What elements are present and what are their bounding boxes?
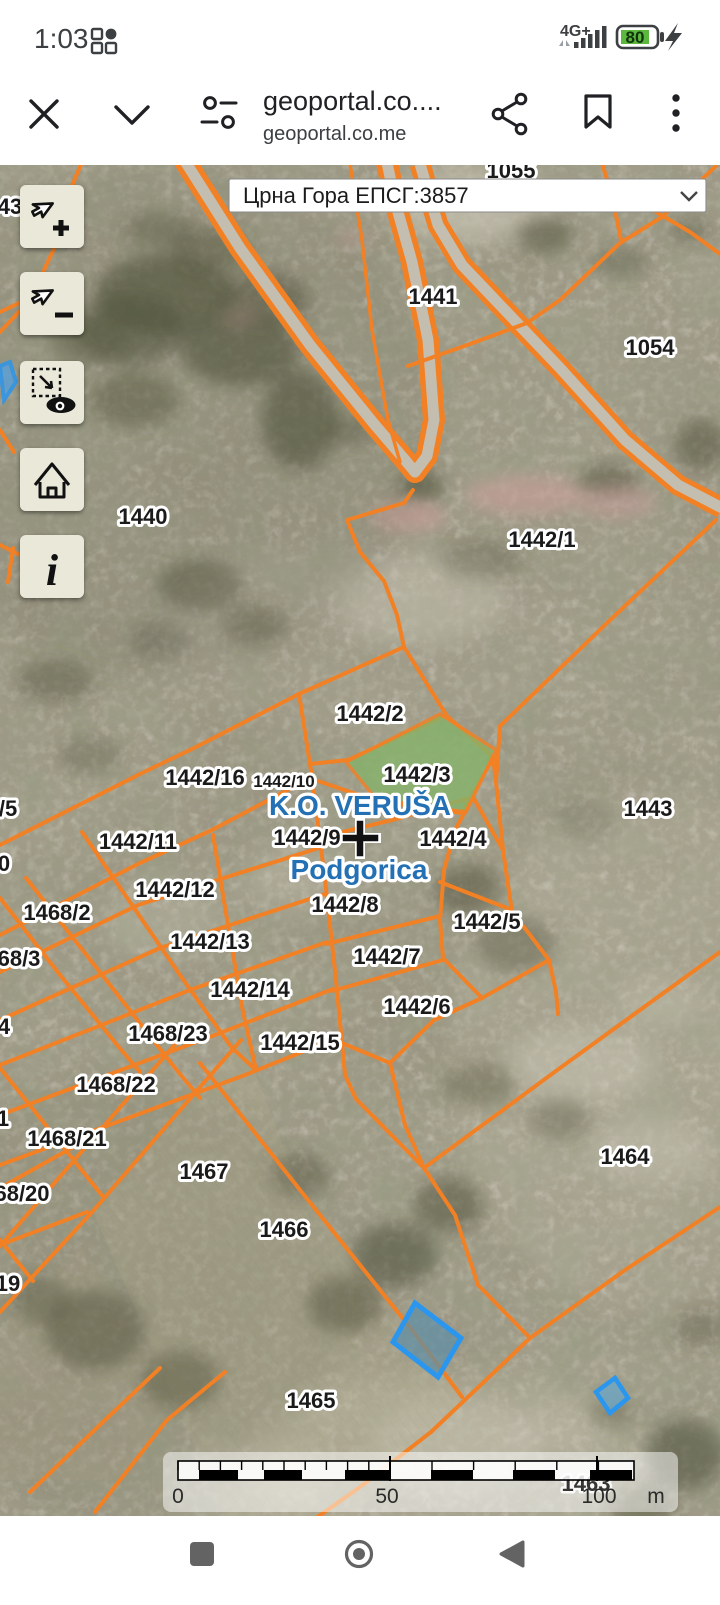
svg-text:19: 19 (0, 1271, 20, 1296)
svg-text:1442/6: 1442/6 (383, 994, 450, 1019)
svg-text:1442/10: 1442/10 (253, 772, 314, 791)
svg-text:1464: 1464 (601, 1144, 651, 1169)
svg-text:1442/8: 1442/8 (311, 892, 378, 917)
svg-text:100: 100 (581, 1485, 616, 1508)
svg-text:1468/2: 1468/2 (23, 900, 90, 925)
svg-text:i: i (46, 546, 59, 595)
svg-text:1466: 1466 (260, 1217, 309, 1242)
svg-text:1442/9: 1442/9 (273, 825, 340, 850)
svg-text:1442/3: 1442/3 (383, 762, 450, 787)
svg-text:1441: 1441 (409, 284, 458, 309)
svg-text:68/20: 68/20 (0, 1181, 50, 1206)
svg-text:1442/12: 1442/12 (135, 877, 215, 902)
svg-text:geoportal.co....: geoportal.co.... (263, 86, 442, 116)
svg-text:geoportal.co.me: geoportal.co.me (263, 123, 406, 145)
svg-text:4: 4 (0, 1014, 11, 1039)
svg-text:1442/15: 1442/15 (260, 1030, 340, 1055)
svg-text:1465: 1465 (287, 1388, 336, 1413)
svg-text:1:03: 1:03 (34, 23, 89, 54)
svg-text:1468/21: 1468/21 (27, 1126, 107, 1151)
svg-text:1442/11: 1442/11 (99, 829, 177, 854)
svg-text:0: 0 (0, 851, 10, 876)
svg-text:1442/2: 1442/2 (336, 701, 403, 726)
svg-text:1442/5: 1442/5 (453, 909, 520, 934)
svg-text:Црна Гора ЕПСГ:3857: Црна Гора ЕПСГ:3857 (243, 183, 469, 208)
svg-text:43: 43 (0, 194, 22, 219)
svg-text:1442/13: 1442/13 (170, 929, 250, 954)
svg-text:m: m (647, 1485, 665, 1508)
svg-text:1442/1: 1442/1 (508, 527, 575, 552)
svg-text:0: 0 (172, 1485, 184, 1508)
svg-text:1054: 1054 (626, 335, 676, 360)
svg-text:80: 80 (626, 28, 645, 47)
svg-text:1442/16: 1442/16 (165, 765, 245, 790)
svg-text:4G+: 4G+ (560, 23, 591, 40)
svg-text:1442/7: 1442/7 (353, 944, 420, 969)
svg-text:1443: 1443 (624, 796, 673, 821)
svg-text:/5: /5 (0, 796, 17, 821)
svg-text:K.O. VERUŠA: K.O. VERUŠA (269, 789, 451, 821)
svg-text:1468/23: 1468/23 (128, 1021, 208, 1046)
svg-text:1440: 1440 (119, 504, 168, 529)
svg-text:1442/4: 1442/4 (419, 826, 487, 851)
svg-text:1467: 1467 (180, 1159, 229, 1184)
svg-text:50: 50 (375, 1485, 398, 1508)
svg-text:1: 1 (0, 1106, 9, 1131)
svg-text:1468/22: 1468/22 (76, 1072, 156, 1097)
svg-text:68/3: 68/3 (0, 946, 40, 971)
svg-text:1442/14: 1442/14 (210, 977, 290, 1002)
